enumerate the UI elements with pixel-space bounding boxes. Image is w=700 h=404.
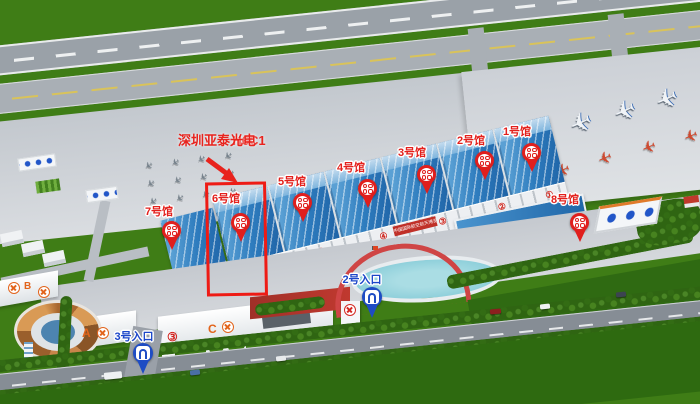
- pin-hall-4[interactable]: [358, 179, 378, 208]
- pin-tail: [421, 181, 433, 194]
- pin-entrance-3[interactable]: [133, 343, 153, 374]
- expo-knot-icon: [344, 304, 356, 316]
- pin-tail: [235, 229, 247, 242]
- label-hall-4: 4号馆: [337, 159, 365, 175]
- red-roof-hut: [683, 195, 699, 208]
- expo-knot-icon: [573, 216, 586, 229]
- label-hall-1: 1号馆: [503, 123, 531, 139]
- company-name: 深圳亚泰光电: [178, 133, 256, 148]
- label-hall-3: 3号馆: [398, 144, 426, 160]
- expo-knot-icon: [222, 321, 234, 333]
- exhibition-venue-map: ✈✈✈✈ ✈✈✈✈ ✈✈✈✈ ✈ ✈ ✈ ✈ ✈ ✈ ✈ ✈ ⑦ ⑥ ⑤ ④ ③…: [0, 0, 700, 404]
- pin-tail: [362, 195, 374, 208]
- label-hall-6: 6号馆: [212, 190, 240, 206]
- label-hall-7: 7号馆: [145, 203, 173, 219]
- label-hall-2: 2号馆: [457, 132, 485, 148]
- expo-knot-icon: [234, 216, 247, 229]
- pin-tail: [166, 237, 178, 250]
- expo-knot-icon: [8, 282, 20, 294]
- zone-a-label: A: [82, 326, 91, 340]
- pin-hall-6[interactable]: [231, 213, 251, 242]
- label-entrance-2: 2号入口: [342, 271, 381, 287]
- pin-tail: [574, 229, 586, 242]
- expo-knot-icon: [478, 154, 491, 167]
- expo-knot-icon: [525, 146, 538, 159]
- small-aircraft-icon: ✈: [143, 159, 156, 173]
- pin-hall-5[interactable]: [293, 193, 313, 222]
- pin-tail: [297, 209, 309, 222]
- expo-knot-icon: [296, 196, 309, 209]
- pin-entrance-2[interactable]: [362, 287, 382, 318]
- label-entrance-3: 3号入口: [114, 328, 153, 344]
- pin-hall-2[interactable]: [475, 151, 495, 180]
- expo-knot-icon: [97, 327, 109, 339]
- gate3-number-sign: ③: [167, 330, 178, 344]
- pin-hall-8[interactable]: [570, 213, 590, 242]
- car: [276, 355, 286, 361]
- pin-tail: [526, 159, 538, 172]
- label-hall-5: 5号馆: [278, 173, 306, 189]
- flag: [372, 246, 378, 250]
- small-aircraft-icon: ✈: [169, 156, 182, 170]
- zone-c-label: C: [208, 322, 217, 336]
- pin-tail: [137, 360, 149, 374]
- label-hall-8: 8号馆: [551, 191, 579, 207]
- pin-hall-1[interactable]: [522, 143, 542, 172]
- annotation-arrow: [203, 156, 241, 186]
- car: [540, 303, 550, 309]
- pin-tail: [366, 304, 378, 318]
- pin-tail: [479, 167, 491, 180]
- pin-hall-7[interactable]: [162, 221, 182, 250]
- expo-knot-icon: [38, 286, 50, 298]
- car: [190, 369, 200, 375]
- car: [616, 291, 626, 297]
- gate-icon: [136, 346, 150, 360]
- booth-annotation: 深圳亚泰光电 H6C1: [178, 133, 320, 148]
- expo-knot-icon: [420, 168, 433, 181]
- pin-hall-3[interactable]: [417, 165, 437, 194]
- expo-knot-icon: [361, 182, 374, 195]
- zone-b-label: B: [24, 281, 31, 292]
- gate-icon: [365, 290, 379, 304]
- expo-knot-icon: [165, 224, 178, 237]
